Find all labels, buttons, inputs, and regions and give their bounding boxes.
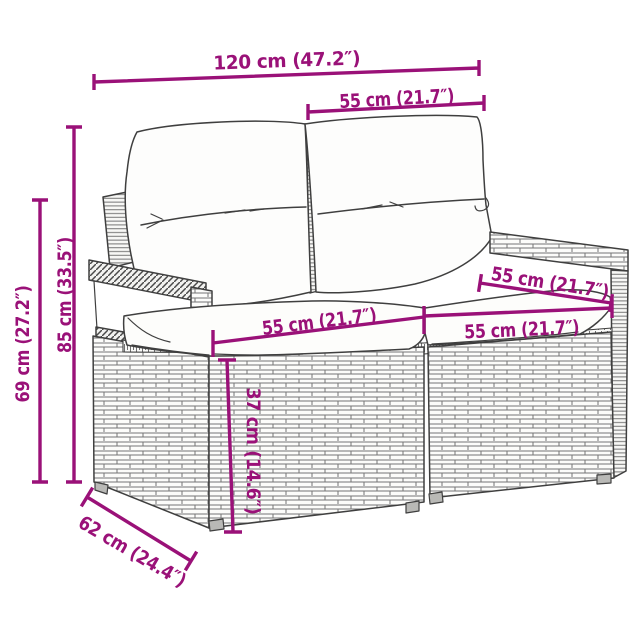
foot xyxy=(597,474,611,484)
dim-armrest-height-lines xyxy=(32,200,48,482)
dim-total-width: 120 cm (47.2″) xyxy=(94,47,479,90)
dim-total-width-label: 120 cm (47.2″) xyxy=(213,47,361,74)
dim-backrest-width-label: 55 cm (21.7″) xyxy=(339,85,455,113)
dim-total-height-label: 85 cm (33.5″) xyxy=(54,237,76,353)
back-cushion-right xyxy=(305,115,492,292)
dim-seat-height-label: 37 cm (14.6″) xyxy=(242,388,264,515)
dim-armrest-height-label: 69 cm (27.2″) xyxy=(12,286,34,403)
left-armrest-base xyxy=(93,336,209,528)
seat-box-left xyxy=(209,347,424,528)
dim-armrest-height: 69 cm (27.2″) xyxy=(12,200,48,482)
dimension-diagram: 120 cm (47.2″) 55 cm (21.7″) 85 cm (33.5… xyxy=(0,0,640,640)
dim-backrest-width: 55 cm (21.7″) xyxy=(308,85,484,120)
foot xyxy=(429,492,443,504)
foot xyxy=(406,501,419,513)
foot xyxy=(209,519,224,531)
dim-total-height: 85 cm (33.5″) xyxy=(54,127,82,482)
seat-box-right xyxy=(428,332,614,498)
diagram-canvas: 120 cm (47.2″) 55 cm (21.7″) 85 cm (33.5… xyxy=(0,0,640,640)
